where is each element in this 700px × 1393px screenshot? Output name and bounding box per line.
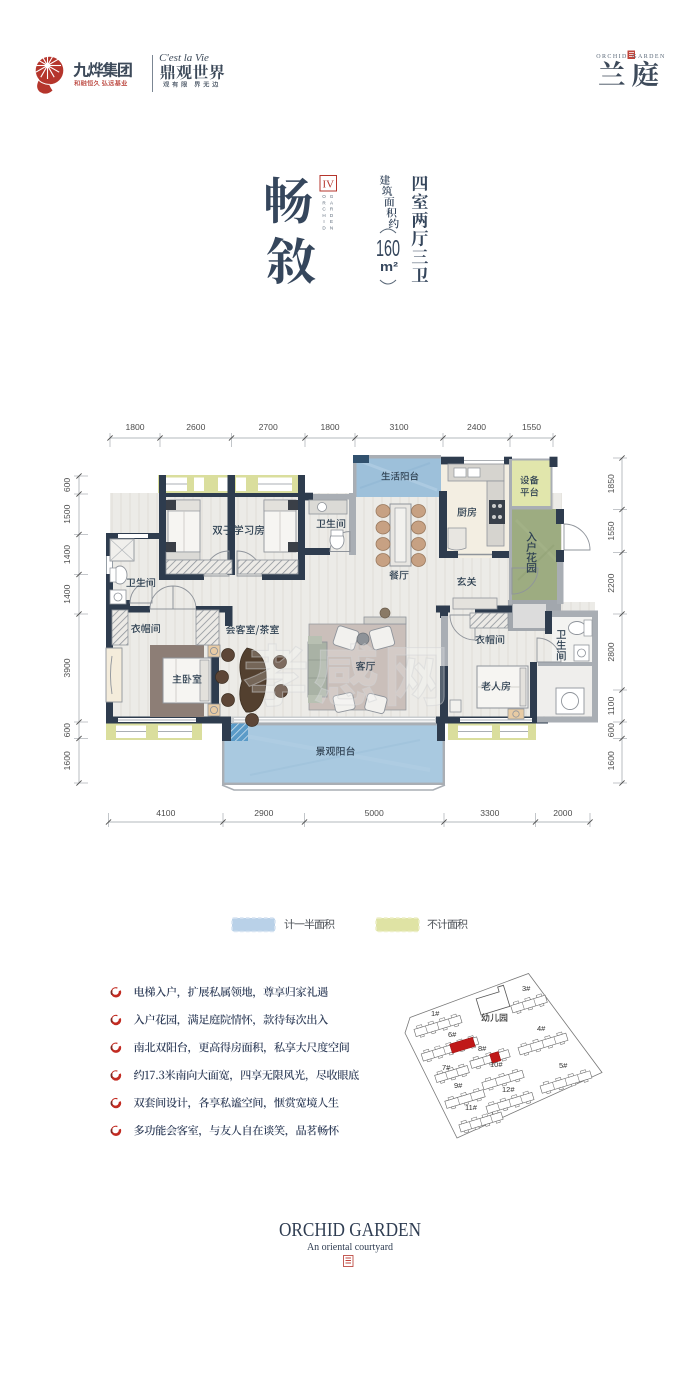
svg-text:2700: 2700 <box>259 422 278 432</box>
svg-text:1600: 1600 <box>62 751 72 770</box>
svg-text:4#: 4# <box>537 1024 546 1033</box>
svg-text:GARDEN: GARDEN <box>632 54 665 60</box>
svg-text:O: O <box>322 194 326 199</box>
svg-text:1100: 1100 <box>606 697 616 716</box>
svg-text:R: R <box>330 207 334 212</box>
svg-text:3100: 3100 <box>389 422 408 432</box>
svg-text:5#: 5# <box>559 1061 568 1070</box>
svg-text:IV: IV <box>322 179 334 191</box>
svg-text:C: C <box>322 207 326 212</box>
svg-text:5000: 5000 <box>365 808 384 818</box>
svg-text:1550: 1550 <box>606 521 616 540</box>
svg-text:m²: m² <box>380 259 399 274</box>
svg-text:2400: 2400 <box>467 422 486 432</box>
svg-text:I: I <box>323 219 324 224</box>
svg-text:600: 600 <box>62 723 72 738</box>
svg-text:2600: 2600 <box>186 422 205 432</box>
svg-text:A: A <box>330 200 334 205</box>
svg-text:2200: 2200 <box>606 573 616 592</box>
svg-text:D: D <box>322 226 326 231</box>
svg-text:G: G <box>330 194 334 199</box>
svg-text:9#: 9# <box>454 1081 463 1090</box>
svg-text:N: N <box>330 226 333 231</box>
svg-text:2800: 2800 <box>606 642 616 661</box>
svg-text:1400: 1400 <box>62 545 72 564</box>
svg-text:10#: 10# <box>490 1060 503 1069</box>
svg-text:An oriental courtyard: An oriental courtyard <box>307 1242 393 1253</box>
svg-text:12#: 12# <box>502 1085 515 1094</box>
svg-text:H: H <box>322 213 325 218</box>
svg-text:600: 600 <box>606 723 616 738</box>
svg-text:1550: 1550 <box>522 422 541 432</box>
svg-text:11#: 11# <box>465 1103 478 1112</box>
svg-text:3300: 3300 <box>480 808 499 818</box>
svg-text:1400: 1400 <box>62 584 72 603</box>
svg-text:2000: 2000 <box>553 808 572 818</box>
svg-text:1500: 1500 <box>62 504 72 523</box>
svg-text:D: D <box>330 213 334 218</box>
svg-text:6#: 6# <box>448 1030 457 1039</box>
svg-text:3#: 3# <box>522 984 531 993</box>
svg-text:ORCHID: ORCHID <box>596 54 627 60</box>
svg-text:1#: 1# <box>431 1009 440 1018</box>
svg-text:600: 600 <box>62 478 72 493</box>
svg-text:160: 160 <box>376 235 400 261</box>
svg-text:8#: 8# <box>478 1044 487 1053</box>
svg-text:1800: 1800 <box>320 422 339 432</box>
svg-text:E: E <box>330 219 333 224</box>
svg-text:2900: 2900 <box>254 808 273 818</box>
svg-text:4100: 4100 <box>156 808 175 818</box>
svg-text:1850: 1850 <box>606 474 616 493</box>
svg-text:3900: 3900 <box>62 658 72 677</box>
svg-text:R: R <box>322 200 326 205</box>
svg-text:ORCHID GARDEN: ORCHID GARDEN <box>279 1220 421 1241</box>
svg-text:1600: 1600 <box>606 751 616 770</box>
svg-text:7#: 7# <box>442 1063 451 1072</box>
svg-text:1800: 1800 <box>125 422 144 432</box>
svg-text:C'est la Vie: C'est la Vie <box>159 52 209 64</box>
